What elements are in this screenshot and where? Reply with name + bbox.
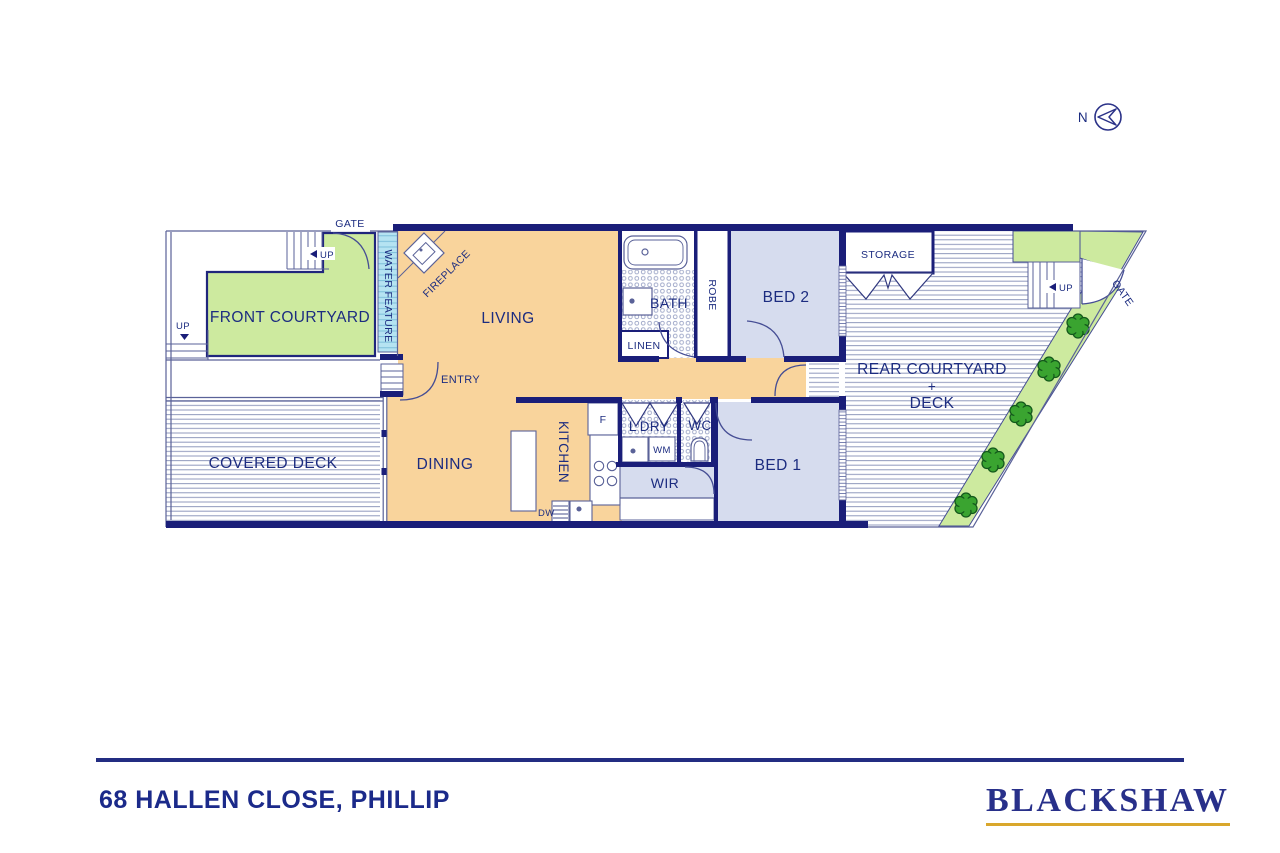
tree-icon <box>1038 357 1060 381</box>
property-address: 68 HALLEN CLOSE, PHILLIP <box>99 786 450 815</box>
washing-machine-label: WM <box>653 445 671 456</box>
laundry-label: L'DRY <box>629 419 669 434</box>
kitchen-label: KITCHEN <box>556 421 571 483</box>
dining-label: DINING <box>417 456 474 473</box>
linen-cupboard: LINEN <box>621 331 668 358</box>
agency-logo: BLACKSHAW <box>986 782 1230 826</box>
tree-icon <box>982 448 1004 472</box>
deck-door-tick <box>382 468 387 475</box>
kitchen-sink-icon <box>570 501 592 522</box>
deck-door-tick <box>382 430 387 437</box>
wc-label: WC <box>688 418 711 433</box>
north-compass-icon: N <box>1078 104 1121 130</box>
kitchen-bench <box>590 435 620 505</box>
floorplan-drawing: STORAGE FRONT COURTYARD UP UP WATER FEAT… <box>0 0 1280 853</box>
water-feature-label: WATER FEATURE <box>382 249 394 342</box>
up-label: UP <box>1059 283 1073 294</box>
up-label: UP <box>320 250 334 261</box>
rear-deck-label: DECK <box>910 395 955 412</box>
front-courtyard-label: FRONT COURTYARD <box>210 309 370 326</box>
living-label: LIVING <box>481 310 534 327</box>
tree-icon <box>955 493 977 517</box>
bed1-label: BED 1 <box>755 457 802 474</box>
front-gate-label: GATE <box>335 218 364 230</box>
vanity-icon <box>623 288 652 315</box>
room-front-courtyard: FRONT COURTYARD <box>207 233 375 356</box>
cooktop-icon <box>594 461 603 470</box>
robe-label: ROBE <box>706 279 718 310</box>
bed1-window <box>839 410 846 500</box>
north-label: N <box>1078 110 1088 125</box>
linen-label: LINEN <box>628 340 661 352</box>
room-storage: STORAGE <box>843 231 933 299</box>
bed1-closet <box>620 498 714 520</box>
entry-label: ENTRY <box>441 374 480 386</box>
floorplan-page: STORAGE FRONT COURTYARD UP UP WATER FEAT… <box>0 0 1280 853</box>
island-bench <box>511 431 536 511</box>
rear-courtyard-label: REAR COURTYARD <box>857 361 1007 378</box>
up-label: UP <box>176 321 190 332</box>
dishwasher-label: DW <box>538 508 555 519</box>
plus-label: + <box>928 379 936 394</box>
compass-arrow-icon <box>1098 109 1116 125</box>
tree-icon <box>1010 402 1032 426</box>
footer-divider <box>96 758 1184 762</box>
bath-label: BATH <box>650 295 688 311</box>
water-feature: WATER FEATURE <box>378 232 398 352</box>
left-steps: UP <box>166 321 208 360</box>
fridge-label: F <box>600 414 607 426</box>
storage-label: STORAGE <box>861 249 915 261</box>
covered-deck-label: COVERED DECK <box>209 455 338 472</box>
wir-label: WIR <box>651 475 679 491</box>
bed2-label: BED 2 <box>763 289 810 306</box>
down-arrow-icon <box>180 334 189 340</box>
rear-up-marker: UP <box>1046 280 1078 294</box>
bed2-window <box>839 266 846 336</box>
